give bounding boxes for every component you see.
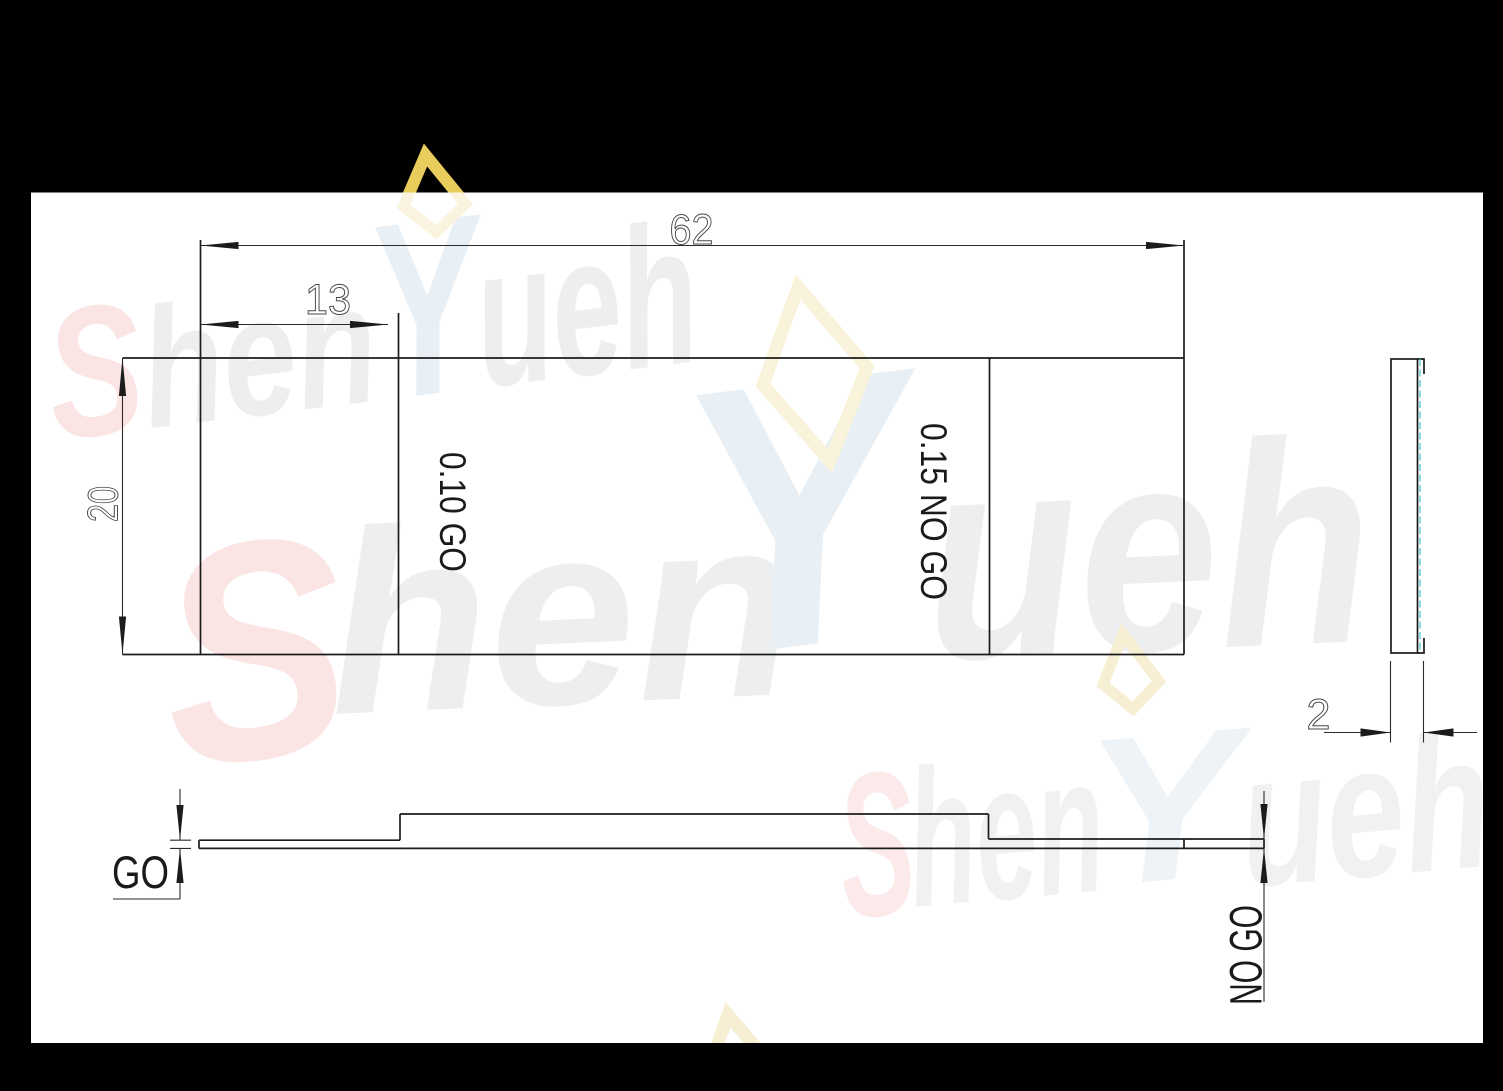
svg-text:0.15 NO GO: 0.15 NO GO [913, 423, 955, 600]
svg-text:13: 13 [305, 276, 351, 324]
svg-text:GO: GO [112, 847, 169, 898]
svg-text:20: 20 [80, 486, 128, 522]
svg-text:hen: hen [899, 715, 1112, 949]
svg-text:0.10 GO: 0.10 GO [432, 452, 474, 572]
svg-text:2: 2 [1307, 691, 1331, 739]
svg-text:62: 62 [670, 206, 714, 254]
svg-text:NO GO: NO GO [1221, 905, 1272, 1005]
